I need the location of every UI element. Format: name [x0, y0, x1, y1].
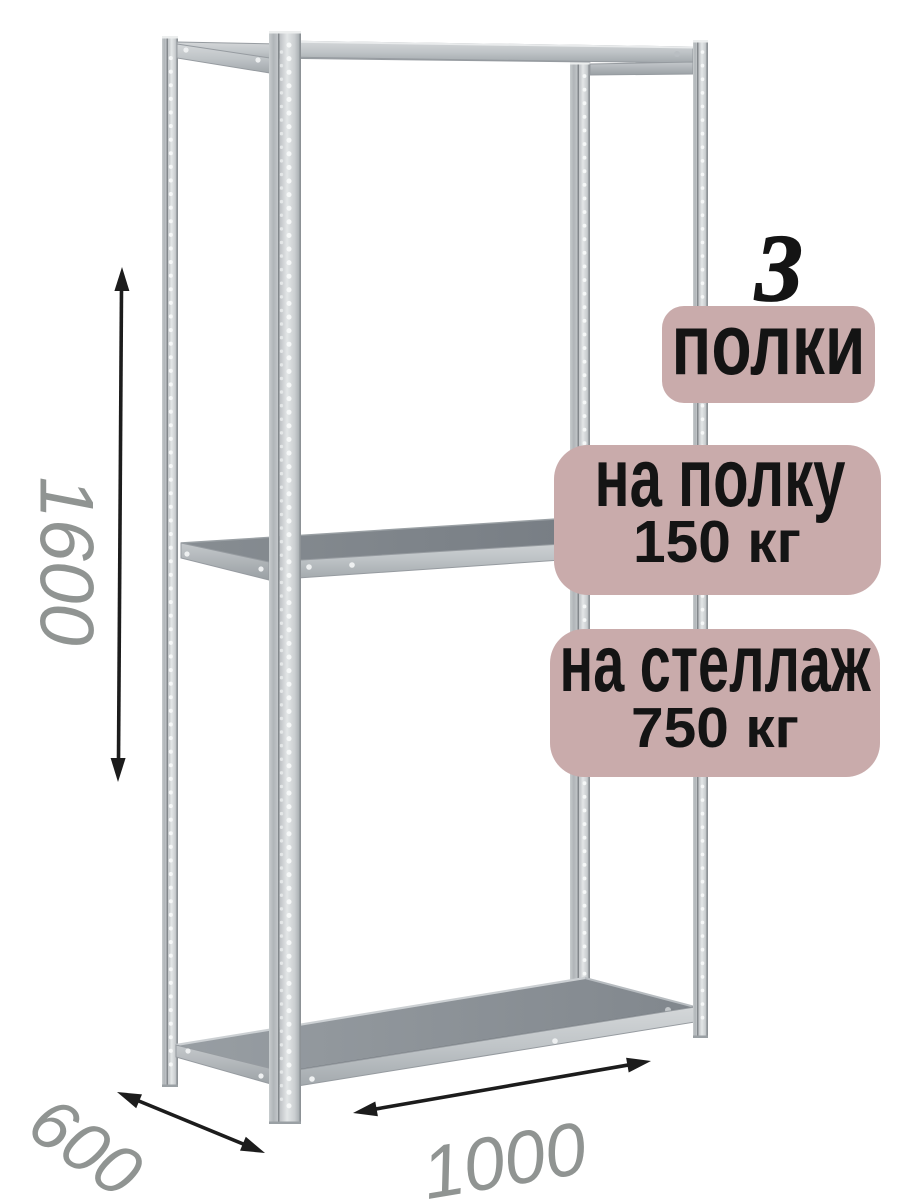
svg-text:750 кг: 750 кг	[631, 696, 799, 760]
svg-text:полки: полки	[672, 297, 866, 393]
svg-text:150 кг: 150 кг	[633, 509, 801, 575]
svg-text:1600: 1600	[24, 476, 109, 645]
